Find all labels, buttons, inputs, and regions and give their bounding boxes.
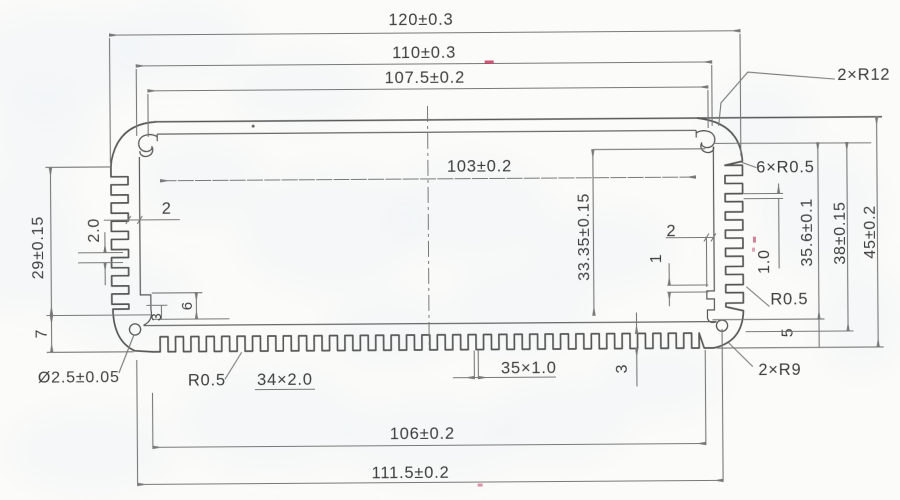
- svg-text:3: 3: [614, 364, 631, 374]
- svg-text:2×R12: 2×R12: [837, 66, 890, 84]
- svg-text:33.35±0.15: 33.35±0.15: [576, 193, 594, 281]
- svg-text:45±0.2: 45±0.2: [862, 205, 879, 259]
- svg-text:2.0: 2.0: [86, 218, 103, 243]
- svg-text:6: 6: [179, 301, 196, 310]
- svg-text:106±0.2: 106±0.2: [390, 425, 455, 443]
- svg-text:5: 5: [780, 327, 797, 337]
- svg-text:2×R9: 2×R9: [758, 361, 801, 379]
- svg-text:110±0.3: 110±0.3: [392, 44, 456, 62]
- svg-text:1: 1: [648, 253, 665, 263]
- svg-text:R0.5: R0.5: [770, 290, 808, 308]
- svg-text:Ø2.5±0.05: Ø2.5±0.05: [38, 369, 120, 387]
- svg-text:103±0.2: 103±0.2: [447, 157, 512, 175]
- svg-text:R0.5: R0.5: [188, 371, 226, 389]
- svg-text:38±0.15: 38±0.15: [832, 201, 849, 264]
- svg-text:29±0.15: 29±0.15: [30, 216, 47, 279]
- svg-text:35.6±0.1: 35.6±0.1: [799, 198, 816, 267]
- svg-text:35×1.0: 35×1.0: [501, 359, 557, 377]
- svg-text:111.5±0.2: 111.5±0.2: [371, 464, 449, 483]
- svg-text:34×2.0: 34×2.0: [257, 371, 313, 389]
- svg-text:107.5±0.2: 107.5±0.2: [385, 69, 466, 88]
- svg-text:7: 7: [34, 329, 51, 339]
- svg-text:1.0: 1.0: [756, 249, 773, 274]
- svg-text:2: 2: [162, 200, 172, 218]
- svg-text:6×R0.5: 6×R0.5: [756, 158, 815, 176]
- svg-text:120±0.3: 120±0.3: [388, 11, 453, 29]
